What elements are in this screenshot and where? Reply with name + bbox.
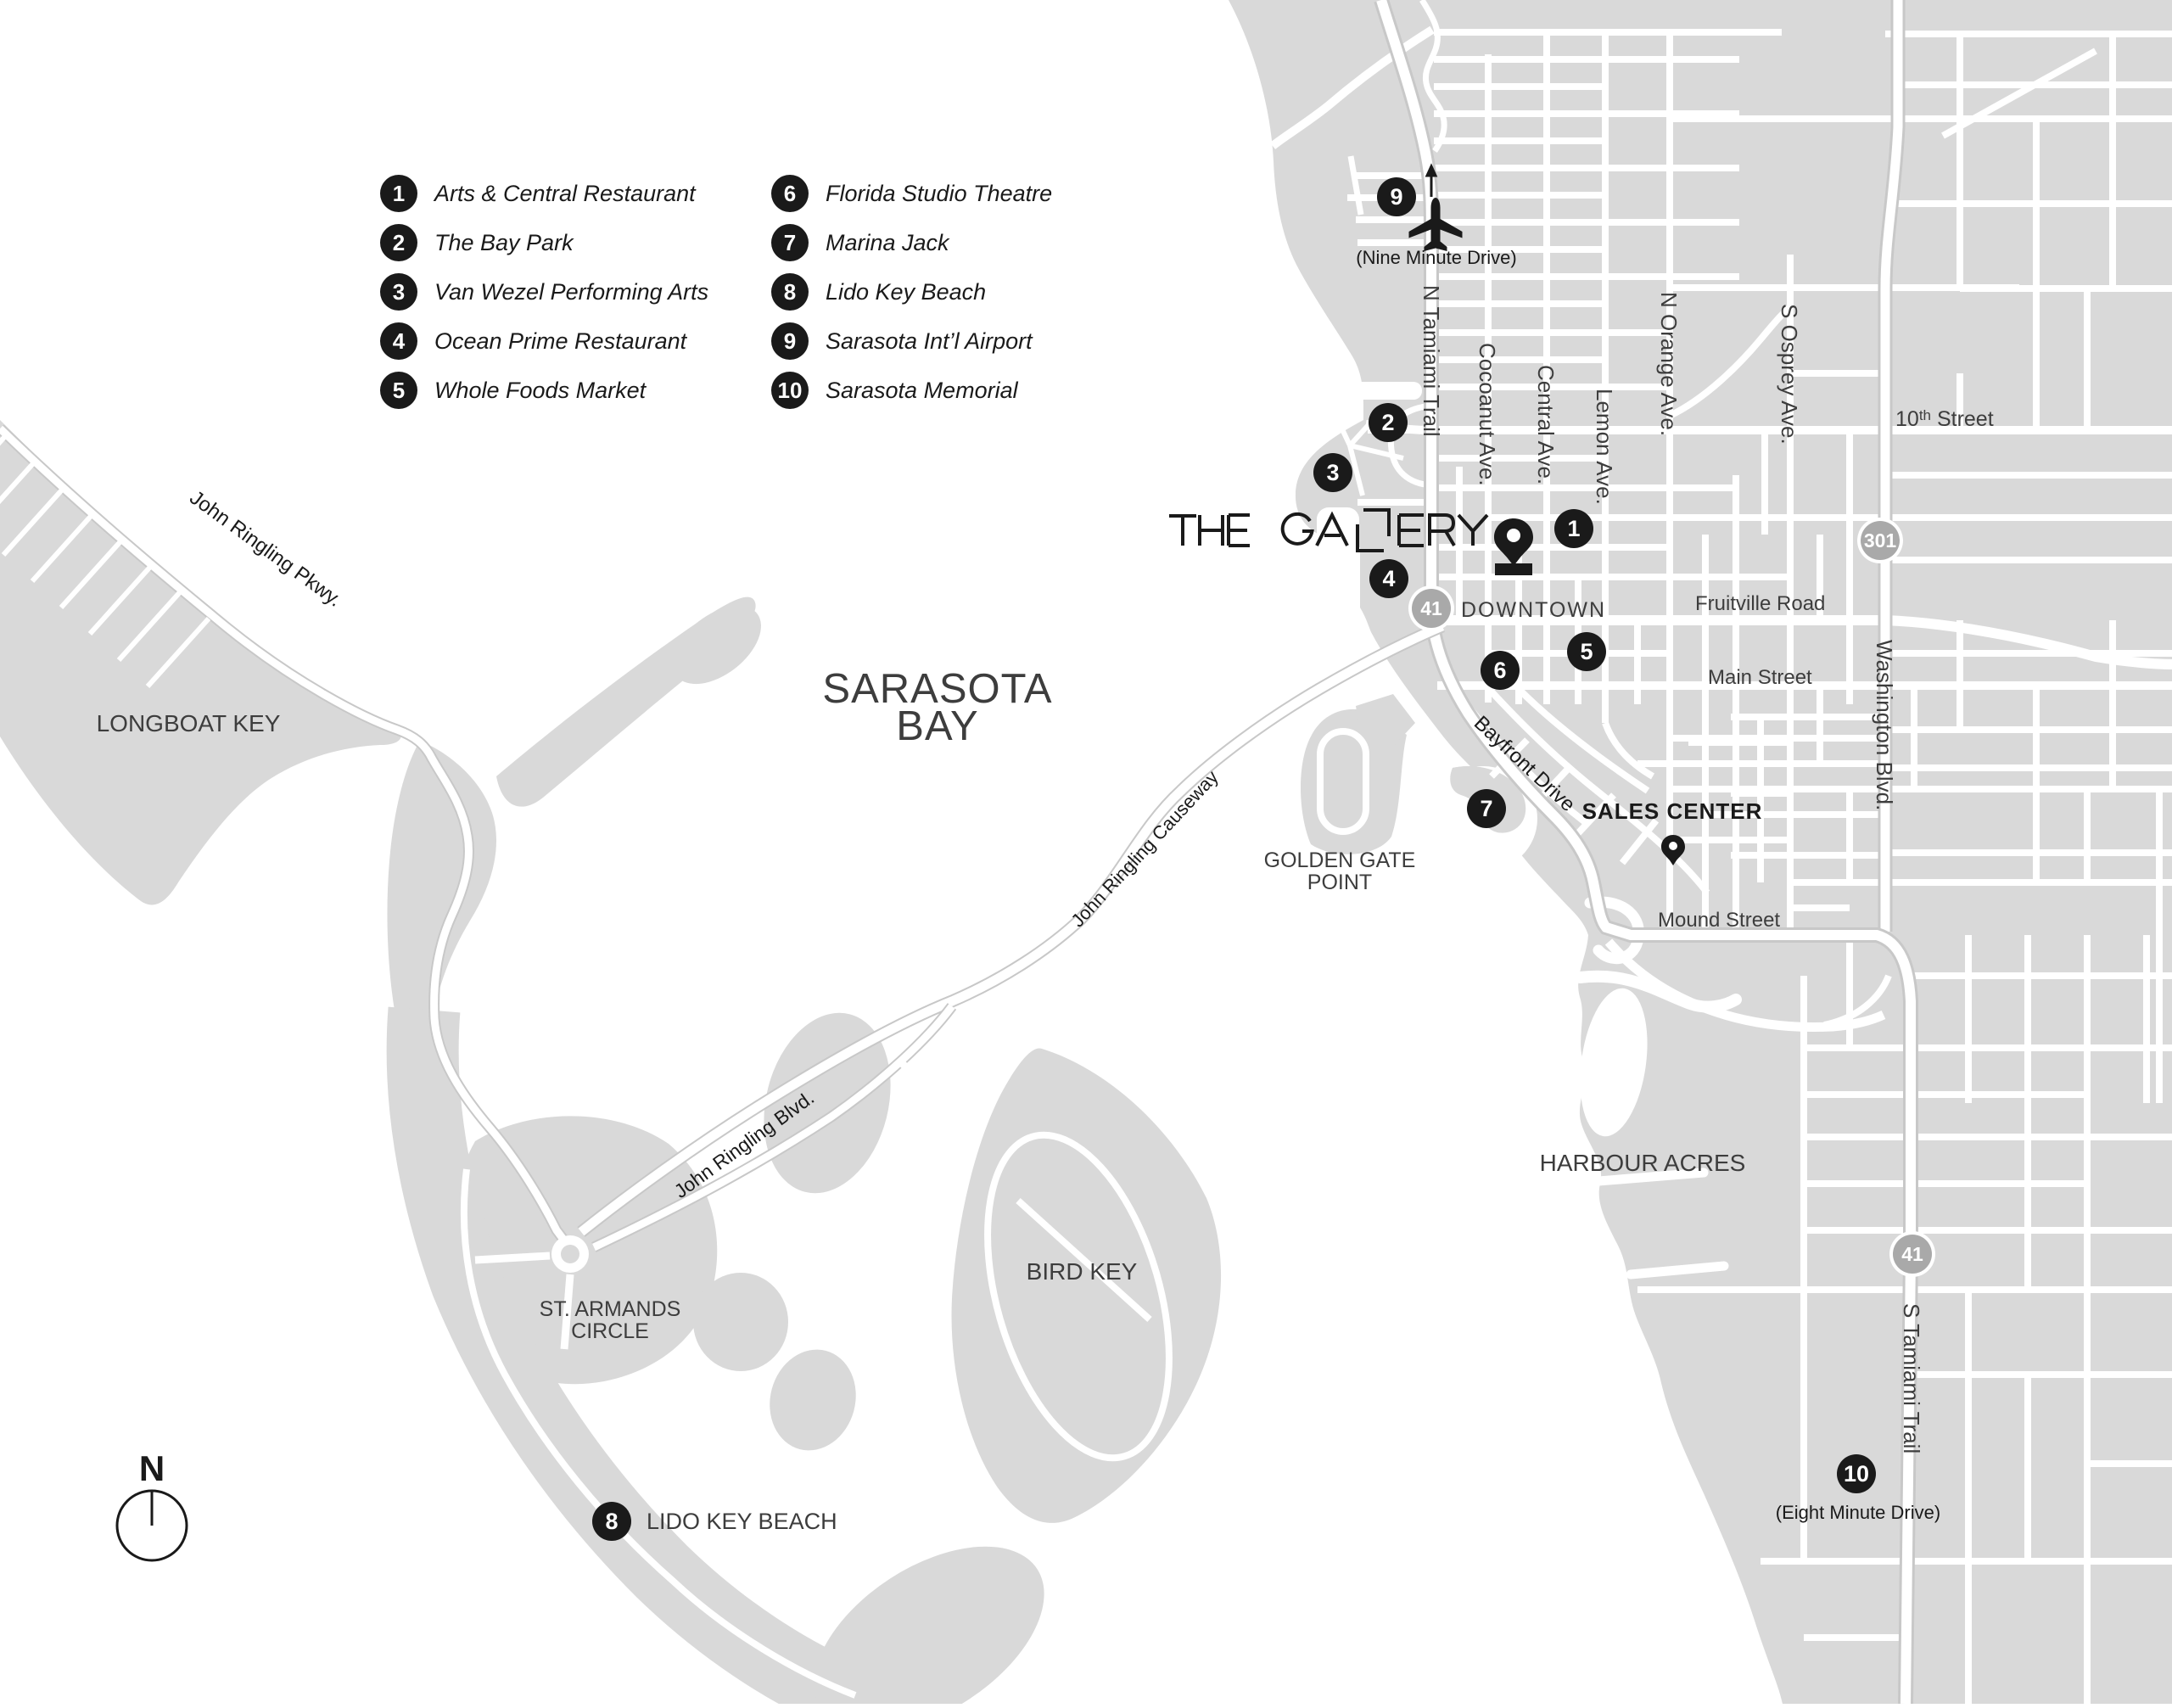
svg-text:HARBOUR ACRES: HARBOUR ACRES: [1540, 1150, 1746, 1176]
svg-text:LIDO KEY BEACH: LIDO KEY BEACH: [647, 1509, 837, 1534]
svg-text:Lido Key Beach: Lido Key Beach: [826, 279, 986, 305]
svg-text:CIRCLE: CIRCLE: [571, 1319, 649, 1343]
svg-text:N: N: [139, 1448, 165, 1488]
svg-text:BAY: BAY: [896, 703, 978, 749]
svg-text:Sarasota Memorial: Sarasota Memorial: [826, 378, 1019, 403]
svg-text:S Osprey Ave.: S Osprey Ave.: [1777, 304, 1802, 445]
svg-text:7: 7: [1480, 796, 1492, 821]
svg-text:5: 5: [1580, 639, 1593, 664]
svg-text:Ocean Prime Restaurant: Ocean Prime Restaurant: [434, 328, 688, 354]
svg-text:41: 41: [1901, 1243, 1923, 1265]
svg-text:7: 7: [784, 230, 796, 255]
svg-text:(Nine Minute Drive): (Nine Minute Drive): [1356, 247, 1517, 268]
svg-text:Main Street: Main Street: [1708, 666, 1812, 689]
svg-text:6: 6: [784, 181, 796, 206]
svg-text:Marina Jack: Marina Jack: [826, 230, 950, 255]
svg-text:2: 2: [393, 230, 405, 255]
svg-text:3: 3: [393, 279, 405, 305]
svg-text:8: 8: [605, 1509, 618, 1534]
svg-text:ST. ARMANDS: ST. ARMANDS: [540, 1297, 681, 1321]
svg-text:BIRD KEY: BIRD KEY: [1027, 1258, 1138, 1285]
svg-text:POINT: POINT: [1307, 871, 1372, 894]
svg-text:Arts & Central Restaurant: Arts & Central Restaurant: [433, 181, 697, 206]
svg-text:9: 9: [1390, 184, 1402, 210]
svg-text:6: 6: [1493, 658, 1506, 683]
svg-text:Lemon Ave.: Lemon Ave.: [1592, 389, 1617, 505]
svg-text:10th Street: 10th Street: [1895, 407, 1994, 431]
svg-text:Whole Foods Market: Whole Foods Market: [434, 378, 647, 403]
svg-text:DOWNTOWN: DOWNTOWN: [1461, 598, 1606, 622]
svg-text:Van Wezel Performing Arts: Van Wezel Performing Arts: [434, 279, 708, 305]
svg-text:8: 8: [784, 279, 796, 305]
svg-text:10: 10: [1844, 1461, 1869, 1487]
svg-text:Central Ave.: Central Ave.: [1533, 365, 1559, 484]
svg-text:(Eight Minute Drive): (Eight Minute Drive): [1776, 1502, 1940, 1523]
svg-text:4: 4: [1382, 566, 1395, 591]
svg-text:301: 301: [1864, 529, 1897, 552]
svg-text:5: 5: [393, 378, 405, 403]
svg-text:2: 2: [1381, 410, 1394, 435]
svg-text:Florida Studio Theatre: Florida Studio Theatre: [826, 181, 1052, 206]
svg-text:Washington Blvd.: Washington Blvd.: [1872, 640, 1897, 810]
svg-text:Sarasota Int’l Airport: Sarasota Int’l Airport: [826, 328, 1033, 354]
svg-text:41: 41: [1420, 597, 1442, 619]
svg-text:SALES CENTER: SALES CENTER: [1582, 798, 1763, 824]
svg-text:3: 3: [1326, 460, 1339, 485]
svg-text:9: 9: [784, 328, 796, 354]
svg-text:4: 4: [393, 328, 406, 354]
svg-text:S Tamiami Trail: S Tamiami Trail: [1899, 1303, 1924, 1453]
svg-text:Cocoanut Ave.: Cocoanut Ave.: [1475, 343, 1500, 486]
svg-text:Fruitville Road: Fruitville Road: [1695, 592, 1825, 615]
svg-text:N Tamiami Trail: N Tamiami Trail: [1419, 285, 1444, 437]
svg-text:1: 1: [1567, 516, 1580, 541]
svg-text:Mound Street: Mound Street: [1658, 909, 1780, 932]
svg-text:GOLDEN GATE: GOLDEN GATE: [1264, 848, 1416, 872]
svg-text:1: 1: [393, 181, 405, 206]
svg-text:N Orange Ave.: N Orange Ave.: [1656, 292, 1682, 436]
svg-text:10: 10: [778, 378, 803, 403]
svg-text:LONGBOAT KEY: LONGBOAT KEY: [97, 710, 281, 736]
svg-text:The Bay Park: The Bay Park: [434, 230, 574, 255]
